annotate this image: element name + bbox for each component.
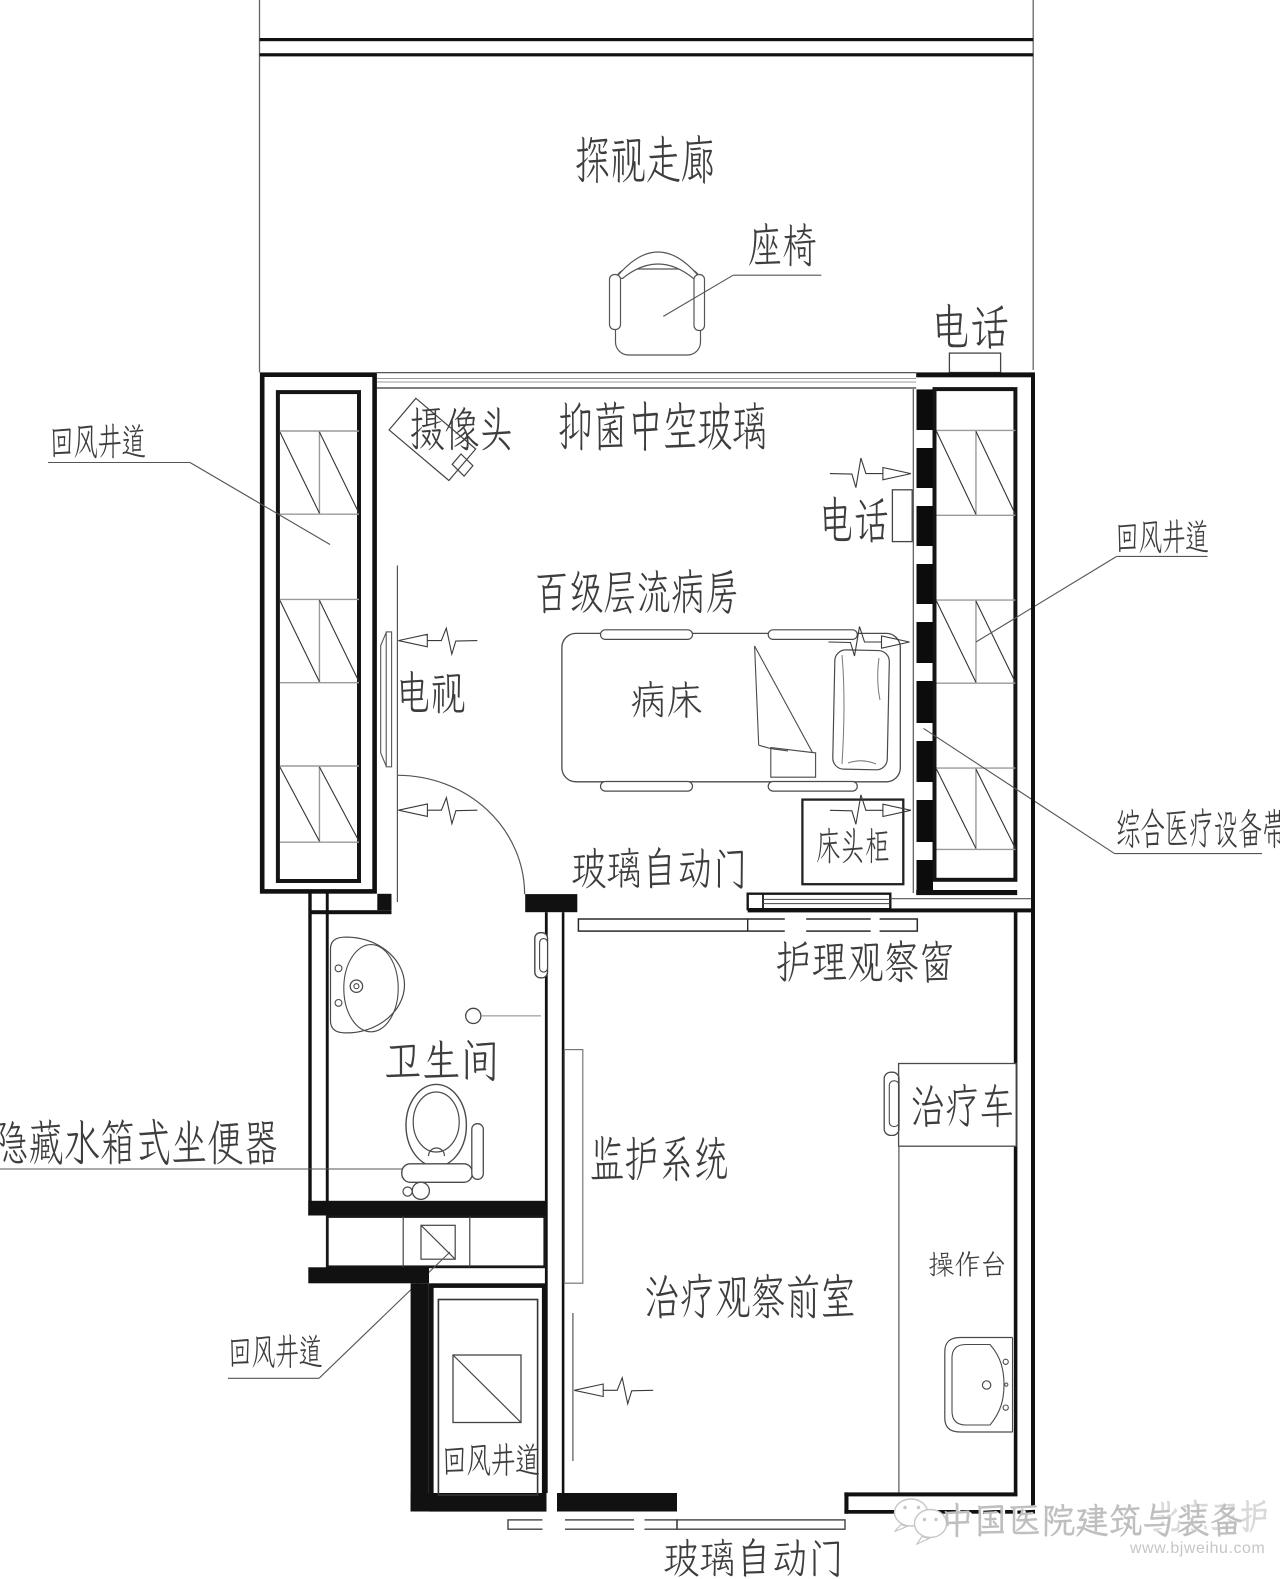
svg-text:www.bjweihu.com: www.bjweihu.com [1129, 1540, 1265, 1557]
